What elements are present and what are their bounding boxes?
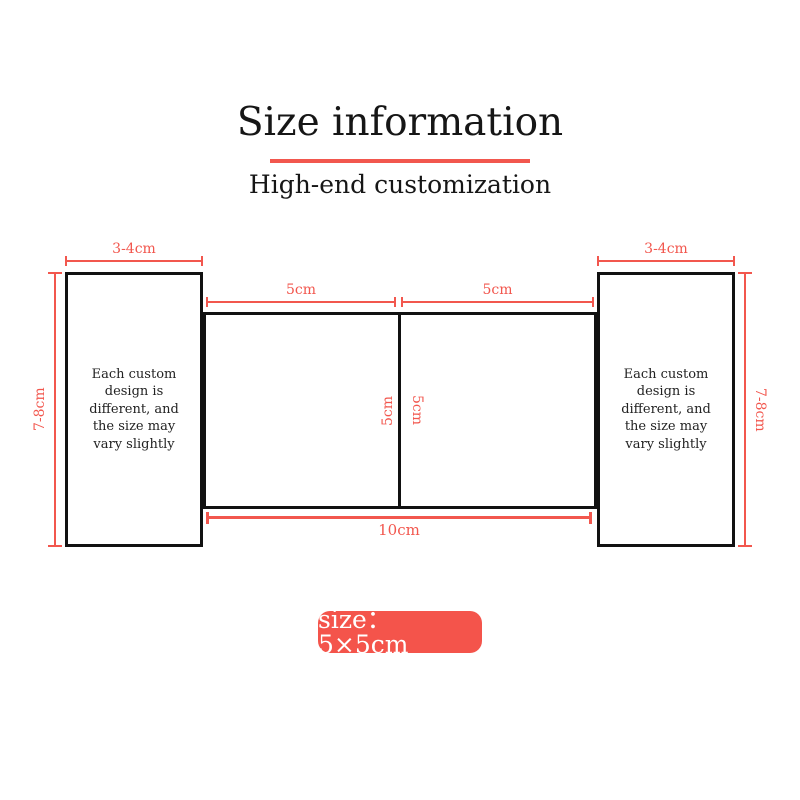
dim-label: 3-4cm: [65, 242, 203, 256]
dim-line: [65, 260, 203, 262]
dim-line: [401, 301, 594, 303]
size-badge: size：5×5cm: [318, 611, 482, 653]
dim-line: [54, 272, 56, 547]
dim-total-width: 10cm: [206, 512, 592, 542]
dim-label: 5cm: [401, 283, 594, 297]
dim-tick-end: [738, 545, 752, 547]
dim-label: 10cm: [206, 523, 592, 538]
dim-label-right-panel-height: 7-8cm: [752, 272, 768, 547]
dim-label: 3-4cm: [597, 242, 735, 256]
title-underline: [270, 159, 530, 163]
dim-tick-end: [201, 256, 203, 266]
dim-tick-start: [401, 297, 403, 307]
dim-tick-end: [592, 297, 594, 307]
dim-left-panel-height: [48, 272, 62, 547]
dim-tick-start: [206, 297, 208, 307]
dim-left-square-width: 5cm: [206, 283, 396, 307]
right-panel: Each custom design is different, and the…: [597, 272, 735, 547]
dim-right-square-width: 5cm: [401, 283, 594, 307]
dim-tick-start: [48, 272, 62, 274]
dim-label-right-square-height: 5cm: [409, 312, 425, 509]
left-panel: Each custom design is different, and the…: [65, 272, 203, 547]
center-squares-divider: [398, 312, 401, 509]
dim-line: [744, 272, 746, 547]
dim-tick-start: [597, 256, 599, 266]
dim-right-panel-height: [738, 272, 752, 547]
subtitle: High-end customization: [0, 171, 800, 199]
dim-line: [597, 260, 735, 262]
dim-label: 5cm: [206, 283, 396, 297]
dim-tick-end: [733, 256, 735, 266]
dim-tick-start: [738, 272, 752, 274]
dim-label-left-square-height: 5cm: [380, 312, 396, 509]
dim-tick-end: [48, 545, 62, 547]
dim-right-panel-width: 3-4cm: [597, 242, 735, 266]
dim-tick-end: [394, 297, 396, 307]
dim-label-left-panel-height: 7-8cm: [32, 272, 48, 547]
left-panel-note: Each custom design is different, and the…: [83, 366, 185, 454]
dim-line: [206, 301, 396, 303]
right-panel-note: Each custom design is different, and the…: [615, 366, 717, 454]
dim-line: [206, 516, 592, 519]
dim-tick-start: [65, 256, 67, 266]
page-title: Size information: [0, 102, 800, 145]
size-information-page: Size information High-end customization …: [0, 0, 800, 800]
dim-left-panel-width: 3-4cm: [65, 242, 203, 266]
size-badge-label: size：5×5cm: [318, 607, 482, 657]
